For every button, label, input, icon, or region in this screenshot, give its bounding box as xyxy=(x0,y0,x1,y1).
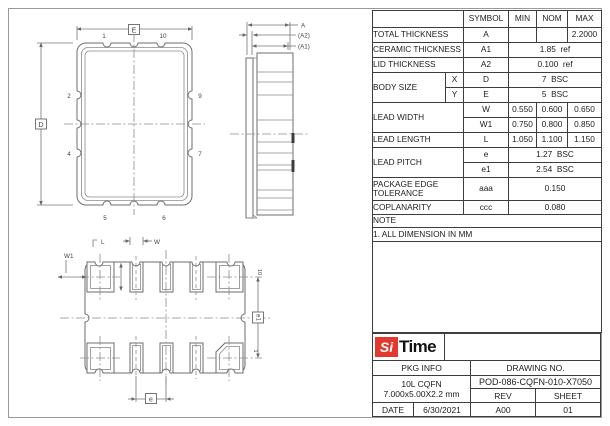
pin-label-9: 9 xyxy=(198,93,202,100)
row-symbol: W xyxy=(464,103,509,118)
row-nom: 1.100 xyxy=(537,133,568,148)
row-symbol: aaa xyxy=(464,178,509,201)
dim-label-e1-boxed: e1 xyxy=(254,314,260,321)
col-header-min: MIN xyxy=(509,11,537,28)
table-row: LEAD LENGTH L 1.050 1.100 1.150 xyxy=(373,133,602,148)
table-row: BODY SIZE X D 7 BSC xyxy=(373,73,602,88)
note-row: 1. ALL DIMENSION IN MM xyxy=(373,228,602,242)
pin-label-2: 2 xyxy=(67,93,71,100)
row-name: LID THICKNESS xyxy=(373,58,464,73)
sheet-value: 01 xyxy=(536,403,600,416)
pin-label-10: 10 xyxy=(159,33,167,40)
note-label: NOTE xyxy=(373,215,602,228)
bottom-view: W1 L W e e1 10 1 xyxy=(58,237,270,404)
date-row: DATE 6/30/2021 A00 01 xyxy=(373,403,600,416)
date-label: DATE xyxy=(373,403,414,416)
date-value: 6/30/2021 xyxy=(414,403,471,416)
row-max: 2.2000 xyxy=(568,28,602,43)
row-value: 1.85 ref xyxy=(509,43,602,58)
row-name: LEAD LENGTH xyxy=(373,133,464,148)
row-symbol: D xyxy=(464,73,509,88)
row-symbol: A1 xyxy=(464,43,509,58)
row-symbol: ccc xyxy=(464,201,509,215)
pkg-info-cell: 10L CQFN 7.000x5.00X2.2 mm xyxy=(373,376,471,402)
top-view: E D 1 10 2 9 4 7 5 6 xyxy=(36,25,206,223)
row-value: 0.150 xyxy=(509,178,602,201)
cell-empty xyxy=(373,11,464,28)
dim-label-L: L xyxy=(101,239,105,246)
row-max: 0.650 xyxy=(568,103,602,118)
table-row: LEAD WIDTH W 0.550 0.600 0.650 xyxy=(373,103,602,118)
row-sub: Y xyxy=(446,88,464,103)
row-nom: 0.800 xyxy=(537,118,568,133)
table-row: PACKAGE EDGE TOLERANCE aaa 0.150 xyxy=(373,178,602,201)
row-max: 1.150 xyxy=(568,133,602,148)
row-value: 1.27 BSC xyxy=(509,148,602,163)
pkg-info-label: PKG INFO xyxy=(373,361,471,375)
notes-area xyxy=(373,242,602,333)
row-name: PACKAGE EDGE TOLERANCE xyxy=(373,178,464,201)
row-name: LEAD PITCH xyxy=(373,148,464,178)
dim-label-A2: (A2) xyxy=(298,33,310,40)
logo-row: SiTime xyxy=(373,334,600,361)
title-block: SiTime PKG INFO DRAWING NO. 10L CQFN 7.0… xyxy=(372,333,601,417)
pin-label-5: 5 xyxy=(103,215,107,222)
pin-label-1: 1 xyxy=(102,33,106,40)
row-nom xyxy=(537,28,568,43)
row-name: COPLANARITY xyxy=(373,201,464,215)
notes-area-row xyxy=(373,242,602,333)
pin-label-7: 7 xyxy=(198,151,202,158)
row-symbol: E xyxy=(464,88,509,103)
col-header-nom: NOM xyxy=(537,11,568,28)
col-header-symbol: SYMBOL xyxy=(464,11,509,28)
dim-label-W: W xyxy=(154,239,160,246)
pkg-name: 10L CQFN xyxy=(401,379,441,389)
sitime-logo: SiTime xyxy=(373,334,445,360)
side-view: A (A2) (A1) xyxy=(230,22,310,218)
dim-label-D-boxed: D xyxy=(38,122,43,129)
table-row: LID THICKNESS A2 0.100 ref xyxy=(373,58,602,73)
row-min: 0.550 xyxy=(509,103,537,118)
pin-label-6: 6 xyxy=(162,215,166,222)
pin-label-1-bottom-view: 1 xyxy=(252,349,258,352)
package-drawings: E D 1 10 2 9 4 7 5 6 xyxy=(0,0,370,426)
title-values-row: 10L CQFN 7.000x5.00X2.2 mm POD-086-CQFN-… xyxy=(373,376,600,403)
table-row: LEAD PITCH e 1.27 BSC xyxy=(373,148,602,163)
row-value: 0.100 ref xyxy=(509,58,602,73)
drawing-no-value: POD-086-CQFN-010-X7050 xyxy=(471,376,600,389)
table-row: COPLANARITY ccc 0.080 xyxy=(373,201,602,215)
dimensions-table: SYMBOL MIN NOM MAX TOTAL THICKNESS A 2.2… xyxy=(372,10,602,333)
logo-time-text: Time xyxy=(399,337,436,357)
rev-label: REV xyxy=(471,389,536,402)
row-symbol: e1 xyxy=(464,163,509,178)
row-value: 7 BSC xyxy=(509,73,602,88)
row-sub: X xyxy=(446,73,464,88)
drawing-sheet: E D 1 10 2 9 4 7 5 6 xyxy=(0,0,610,426)
table-header-row: SYMBOL MIN NOM MAX xyxy=(373,11,602,28)
rev-value: A00 xyxy=(471,403,536,416)
row-nom: 0.600 xyxy=(537,103,568,118)
table-row: TOTAL THICKNESS A 2.2000 xyxy=(373,28,602,43)
col-header-max: MAX xyxy=(568,11,602,28)
row-symbol: L xyxy=(464,133,509,148)
row-symbol: e xyxy=(464,148,509,163)
row-name: BODY SIZE xyxy=(373,73,446,103)
row-value: 2.54 BSC xyxy=(509,163,602,178)
sheet-label: SHEET xyxy=(536,389,600,402)
row-max: 0.850 xyxy=(568,118,602,133)
note-header-row: NOTE xyxy=(373,215,602,228)
dim-label-W1: W1 xyxy=(64,253,74,260)
dim-label-e-boxed: e xyxy=(149,397,153,404)
row-min: 1.050 xyxy=(509,133,537,148)
row-value: 5 BSC xyxy=(509,88,602,103)
dim-label-A: A xyxy=(301,23,306,30)
logo-row-spacer xyxy=(445,334,600,360)
title-labels-row: PKG INFO DRAWING NO. xyxy=(373,361,600,376)
dim-label-A1: (A1) xyxy=(298,44,310,51)
note-text: 1. ALL DIMENSION IN MM xyxy=(373,228,602,242)
row-name: TOTAL THICKNESS xyxy=(373,28,464,43)
pin-label-10-bottom-view: 10 xyxy=(256,269,262,275)
dim-label-E-boxed: E xyxy=(132,28,137,35)
pkg-dims: 7.000x5.00X2.2 mm xyxy=(383,389,459,399)
row-symbol: A xyxy=(464,28,509,43)
logo-si-mark: Si xyxy=(375,337,398,357)
row-min: 0.750 xyxy=(509,118,537,133)
row-name: CERAMIC THICKNESS xyxy=(373,43,464,58)
drawing-no-label: DRAWING NO. xyxy=(471,361,600,375)
row-symbol: W1 xyxy=(464,118,509,133)
pin-label-4: 4 xyxy=(67,151,71,158)
row-value: 0.080 xyxy=(509,201,602,215)
row-min xyxy=(509,28,537,43)
row-symbol: A2 xyxy=(464,58,509,73)
table-row: CERAMIC THICKNESS A1 1.85 ref xyxy=(373,43,602,58)
row-name: LEAD WIDTH xyxy=(373,103,464,133)
